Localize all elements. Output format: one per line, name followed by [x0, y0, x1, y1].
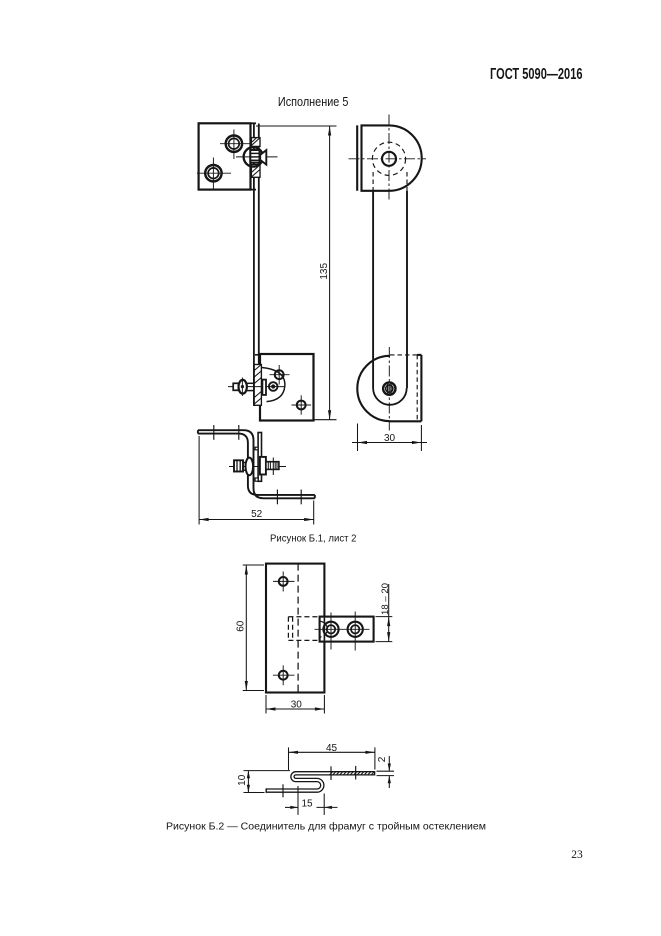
svg-text:18 – 20: 18 – 20 — [380, 583, 391, 615]
svg-text:Рисунок Б.2 — Соединитель для: Рисунок Б.2 — Соединитель для фрамуг с т… — [166, 821, 486, 833]
svg-text:10: 10 — [237, 774, 248, 786]
svg-text:15: 15 — [301, 799, 313, 810]
svg-text:52: 52 — [251, 509, 263, 520]
svg-text:45: 45 — [326, 743, 338, 754]
svg-text:ГОСТ 5090—2016: ГОСТ 5090—2016 — [490, 66, 583, 83]
svg-text:30: 30 — [384, 433, 396, 444]
svg-text:2: 2 — [377, 756, 388, 762]
svg-text:23: 23 — [571, 849, 583, 861]
svg-text:60: 60 — [236, 620, 247, 632]
svg-text:135: 135 — [319, 263, 330, 280]
svg-text:Исполнение 5: Исполнение 5 — [278, 95, 349, 109]
svg-text:Рисунок Б.1, лист 2: Рисунок Б.1, лист 2 — [270, 533, 357, 544]
svg-text:30: 30 — [291, 700, 303, 711]
